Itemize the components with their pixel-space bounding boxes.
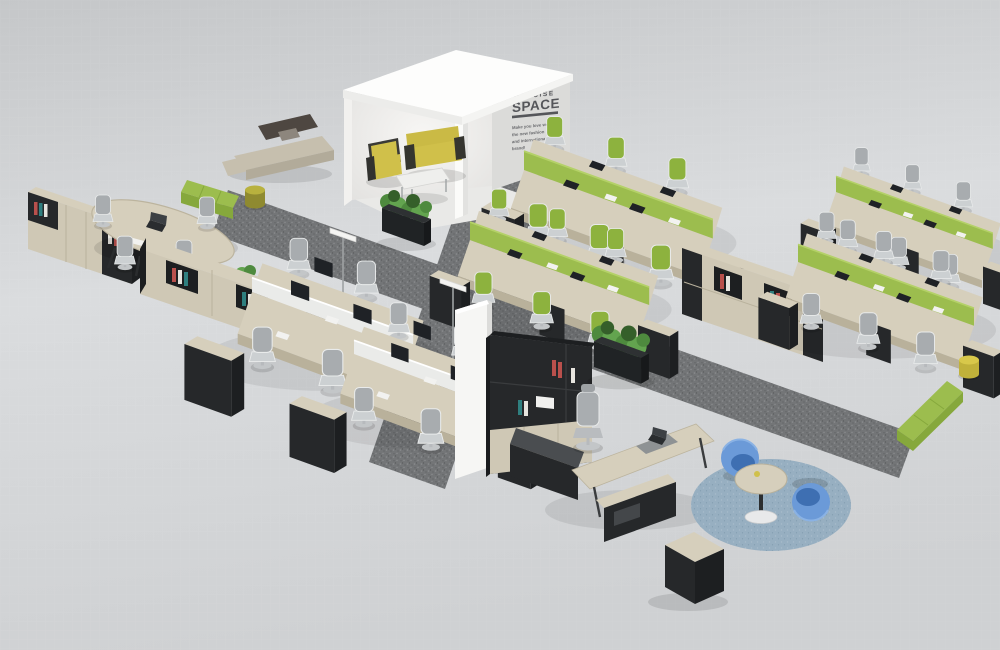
yellow-pouf	[958, 356, 980, 381]
partition-wall	[455, 300, 487, 479]
room-left-wall	[344, 92, 352, 206]
office-showroom-render: CONCISE SPACE Make you love work the new…	[0, 0, 1000, 650]
printer	[536, 396, 554, 409]
olive-pouf	[244, 186, 266, 211]
room-front-pillar-shadow	[463, 117, 468, 216]
blue-tub-chair-2	[792, 478, 830, 521]
isometric-office-scene: CONCISE SPACE Make you love work the new…	[0, 0, 1000, 650]
